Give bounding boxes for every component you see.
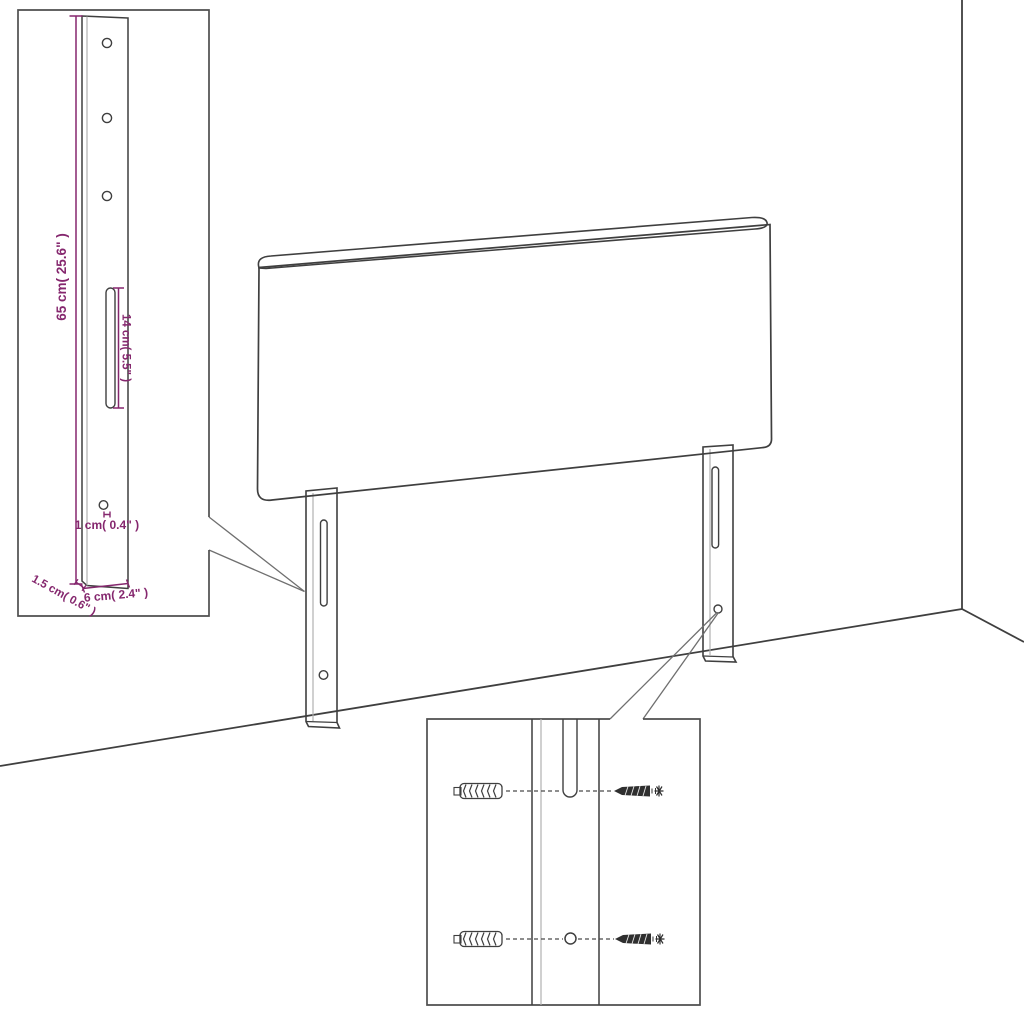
assembly-diagram: 65 cm( 25.6" ) 14 cm( 5.5" ) 1 cm( 0.4" …: [0, 0, 1024, 1024]
bracket-small-hole: [99, 501, 108, 510]
wedge-left-line-top: [209, 517, 305, 592]
dimension-label-hole: 1 cm( 0.4" ): [75, 518, 139, 532]
leg-right-body: [703, 445, 736, 662]
diagram-canvas: 65 cm( 25.6" ) 14 cm( 5.5" ) 1 cm( 0.4" …: [0, 0, 1024, 1024]
dimension-width: 6 cm( 2.4" ): [82, 580, 149, 605]
bracket-hole-1: [102, 38, 111, 47]
leg-left-body: [306, 488, 340, 728]
floor-line-right: [962, 609, 1024, 642]
leg-left-hole: [319, 671, 328, 680]
dimension-label-height: 65 cm( 25.6" ): [54, 233, 69, 320]
leg-right-slot: [712, 467, 719, 548]
dimension-hole-tick: [104, 512, 110, 518]
plug-ribs: [464, 933, 497, 946]
screw-icon: [615, 934, 665, 945]
leg-right-foot-edge: [703, 656, 733, 657]
room-corner: [0, 0, 1024, 766]
strip-slot: [563, 719, 577, 797]
headboard-leg-right: [703, 445, 736, 662]
screw-head-star: [656, 934, 665, 945]
headboard-panel: [258, 217, 772, 500]
wall-plug-icon: [454, 784, 502, 799]
headboard-leg-left: [306, 488, 340, 728]
plug-ribs: [464, 785, 497, 798]
wedge-left-line-bottom: [209, 550, 305, 592]
floor-line-left: [0, 609, 962, 766]
dimension-hole: 1 cm( 0.4" ): [75, 512, 139, 533]
strip-hole: [565, 933, 576, 944]
leg-left-foot-edge: [306, 722, 337, 723]
wedge-right-line-right: [643, 613, 719, 720]
dimension-label-slot: 14 cm( 5.5" ): [120, 314, 132, 382]
screw-icon: [614, 786, 664, 797]
panel-front-face: [258, 225, 772, 501]
dimension-label-width: 6 cm( 2.4" ): [83, 585, 148, 605]
wedge-right-line-left: [610, 613, 717, 720]
dimension-height-line: [70, 16, 83, 584]
hardware-inset: [427, 719, 700, 1005]
dimension-height: 65 cm( 25.6" ): [54, 16, 83, 584]
leg-strip-front-view: [532, 719, 599, 1005]
leg-right-hole: [714, 605, 722, 613]
bracket-bar: [82, 16, 128, 589]
bracket-slot: [106, 288, 115, 408]
wall-plug-icon: [454, 932, 502, 947]
bracket-hole-3: [102, 191, 111, 200]
bracket-inset: 65 cm( 25.6" ) 14 cm( 5.5" ) 1 cm( 0.4" …: [18, 10, 209, 618]
leg-left-slot: [321, 520, 328, 606]
callout-wedge-left: [209, 517, 305, 592]
bracket-hole-2: [102, 113, 111, 122]
screw-head-star: [655, 786, 664, 797]
